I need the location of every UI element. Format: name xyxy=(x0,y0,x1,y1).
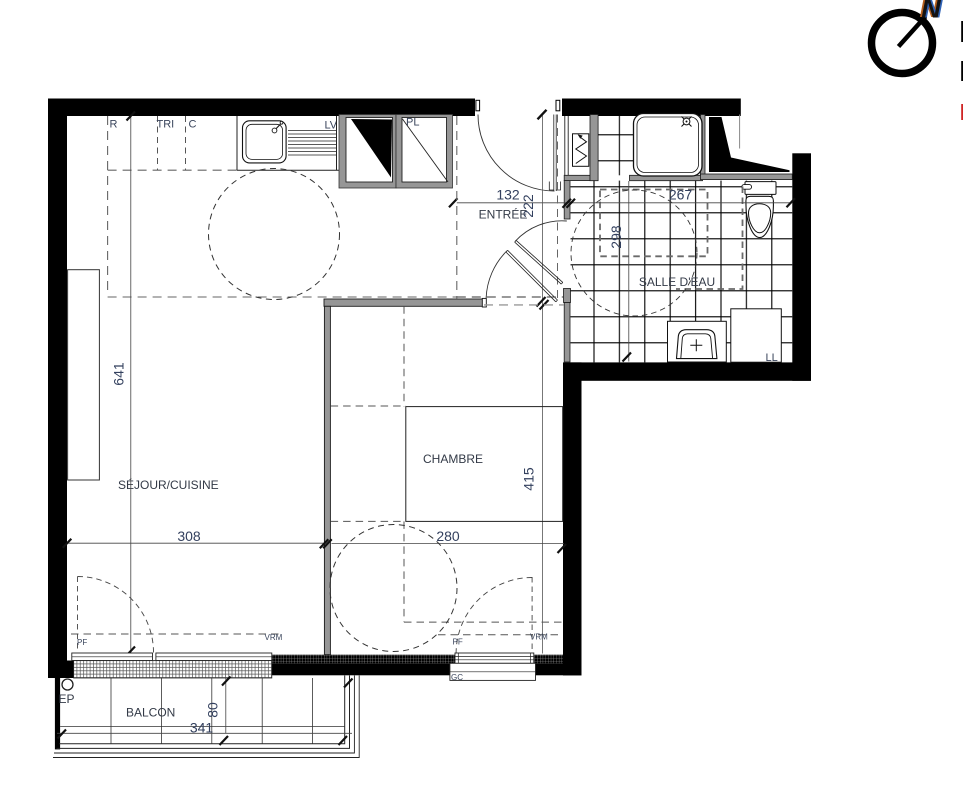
svg-text:80: 80 xyxy=(205,702,221,718)
svg-text:VRM: VRM xyxy=(530,633,548,642)
svg-text:PF: PF xyxy=(77,638,87,647)
svg-text:SÉJOUR/CUISINE: SÉJOUR/CUISINE xyxy=(118,477,219,492)
svg-text:R: R xyxy=(110,119,118,131)
svg-text:CHAMBRE: CHAMBRE xyxy=(423,452,483,466)
svg-text:GC: GC xyxy=(451,673,463,682)
svg-text:PF: PF xyxy=(453,638,463,647)
svg-text:267: 267 xyxy=(669,187,693,203)
svg-text:SALLE D'EAU: SALLE D'EAU xyxy=(639,275,715,289)
svg-text:TRI: TRI xyxy=(157,119,175,131)
svg-text:132: 132 xyxy=(496,187,520,203)
svg-text:298: 298 xyxy=(608,225,624,249)
svg-text:PL: PL xyxy=(406,117,419,129)
svg-text:VRM: VRM xyxy=(265,633,283,642)
svg-text:EP: EP xyxy=(59,692,75,706)
svg-text:280: 280 xyxy=(436,528,460,544)
svg-text:415: 415 xyxy=(521,467,537,491)
svg-text:N: N xyxy=(921,0,941,23)
svg-text:641: 641 xyxy=(111,362,127,386)
svg-text:308: 308 xyxy=(177,528,201,544)
svg-text:ENTRÉE: ENTRÉE xyxy=(479,207,528,222)
svg-text:LL: LL xyxy=(766,352,778,364)
svg-text:341: 341 xyxy=(190,720,214,736)
svg-text:LV: LV xyxy=(325,120,338,132)
svg-text:C: C xyxy=(189,119,197,131)
svg-text:BALCON: BALCON xyxy=(126,706,175,720)
